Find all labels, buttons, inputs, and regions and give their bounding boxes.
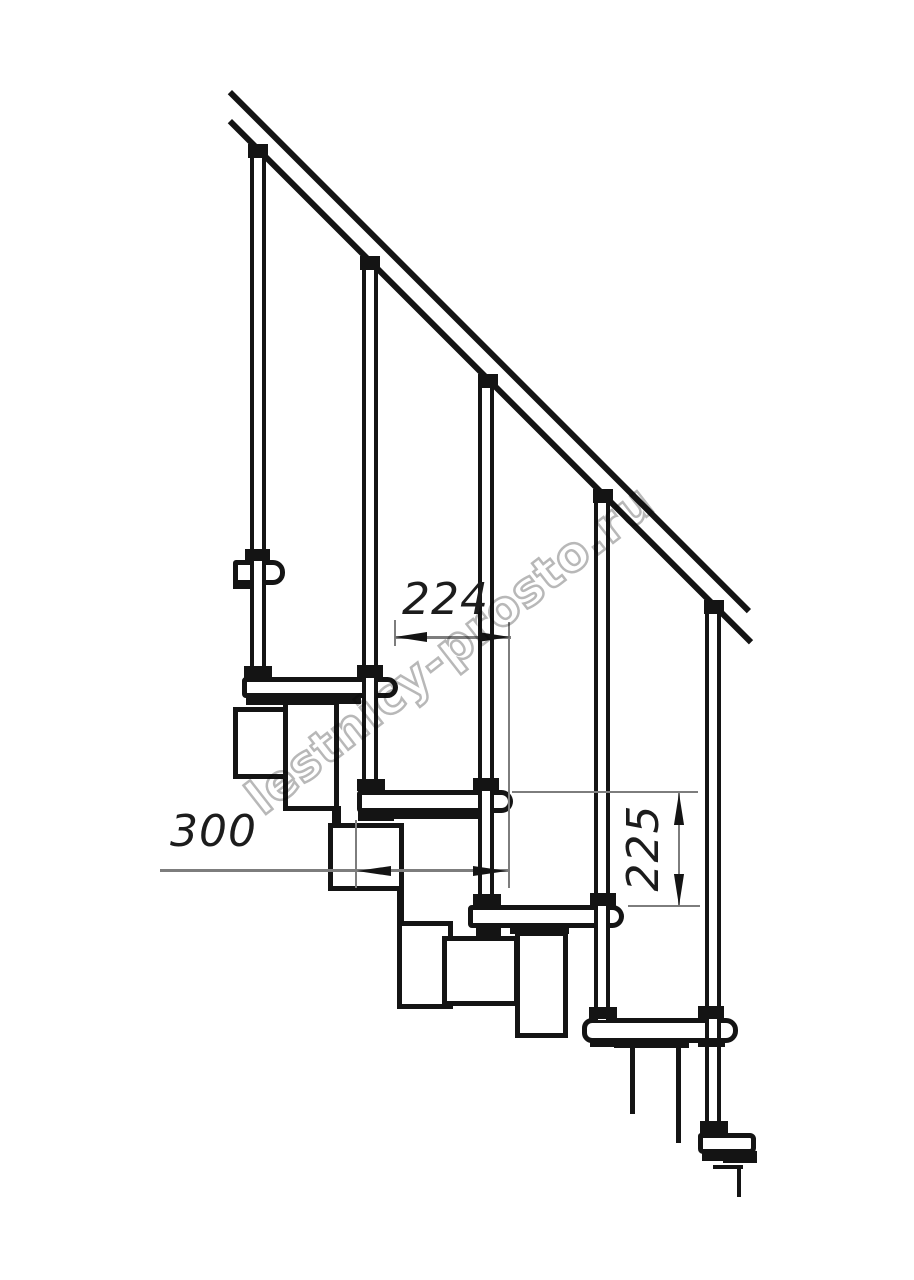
arrow-rise-down — [673, 874, 685, 906]
baluster-foot-4 — [589, 1007, 617, 1019]
baluster-rod-5 — [705, 610, 721, 1133]
baluster-washer-tread-4 — [590, 893, 616, 906]
staircase-drawing: 224 300 225 lestnicy-prosto.ru — [0, 0, 914, 1280]
strip-under-tread-5 — [614, 1039, 689, 1048]
baluster-rod-1 — [250, 150, 266, 677]
support-module-a4 — [442, 936, 519, 1006]
ext-line-rise-top — [512, 791, 698, 793]
pad-under-tread-5-right — [698, 1038, 725, 1047]
tread-1-nub — [233, 580, 250, 589]
pad-under-tread-5-left — [590, 1038, 616, 1047]
ext-line-run-right — [508, 622, 510, 888]
baluster-foot-5 — [700, 1121, 728, 1134]
baluster-washer-tread-1 — [245, 549, 270, 561]
baluster-rail-cap-5 — [704, 600, 724, 614]
pad-under-tread-4 — [476, 925, 501, 937]
baluster-rail-cap-3 — [478, 374, 498, 388]
strip-under-tread-4 — [510, 926, 569, 934]
baluster-washer-tread-5 — [698, 1006, 724, 1019]
pad-under-tread-3 — [358, 810, 394, 821]
support-module-a3 — [328, 823, 404, 891]
baluster-rail-cap-1 — [248, 144, 268, 158]
strip-under-floor-plate-b — [723, 1151, 757, 1163]
arrow-rise-up — [673, 793, 685, 825]
module-cut-line-right — [676, 1046, 681, 1143]
strip-under-floor-plate-a — [702, 1152, 723, 1161]
module-cut-line-left — [630, 1046, 635, 1114]
dimension-label-rise: 225 — [618, 778, 666, 918]
dim-line-module — [160, 869, 508, 872]
baluster-foot-3 — [473, 894, 501, 906]
strip-under-tread-3 — [392, 811, 479, 819]
center-line-module — [355, 820, 357, 888]
baluster-foot-2 — [357, 779, 385, 791]
baluster-foot-1 — [244, 666, 272, 678]
floor-cut-line-v — [737, 1165, 741, 1197]
module-neck-3-4 — [397, 886, 404, 924]
baluster-rail-cap-2 — [360, 256, 380, 270]
support-module-b4 — [515, 931, 568, 1038]
baluster-washer-tread-3 — [473, 778, 499, 791]
